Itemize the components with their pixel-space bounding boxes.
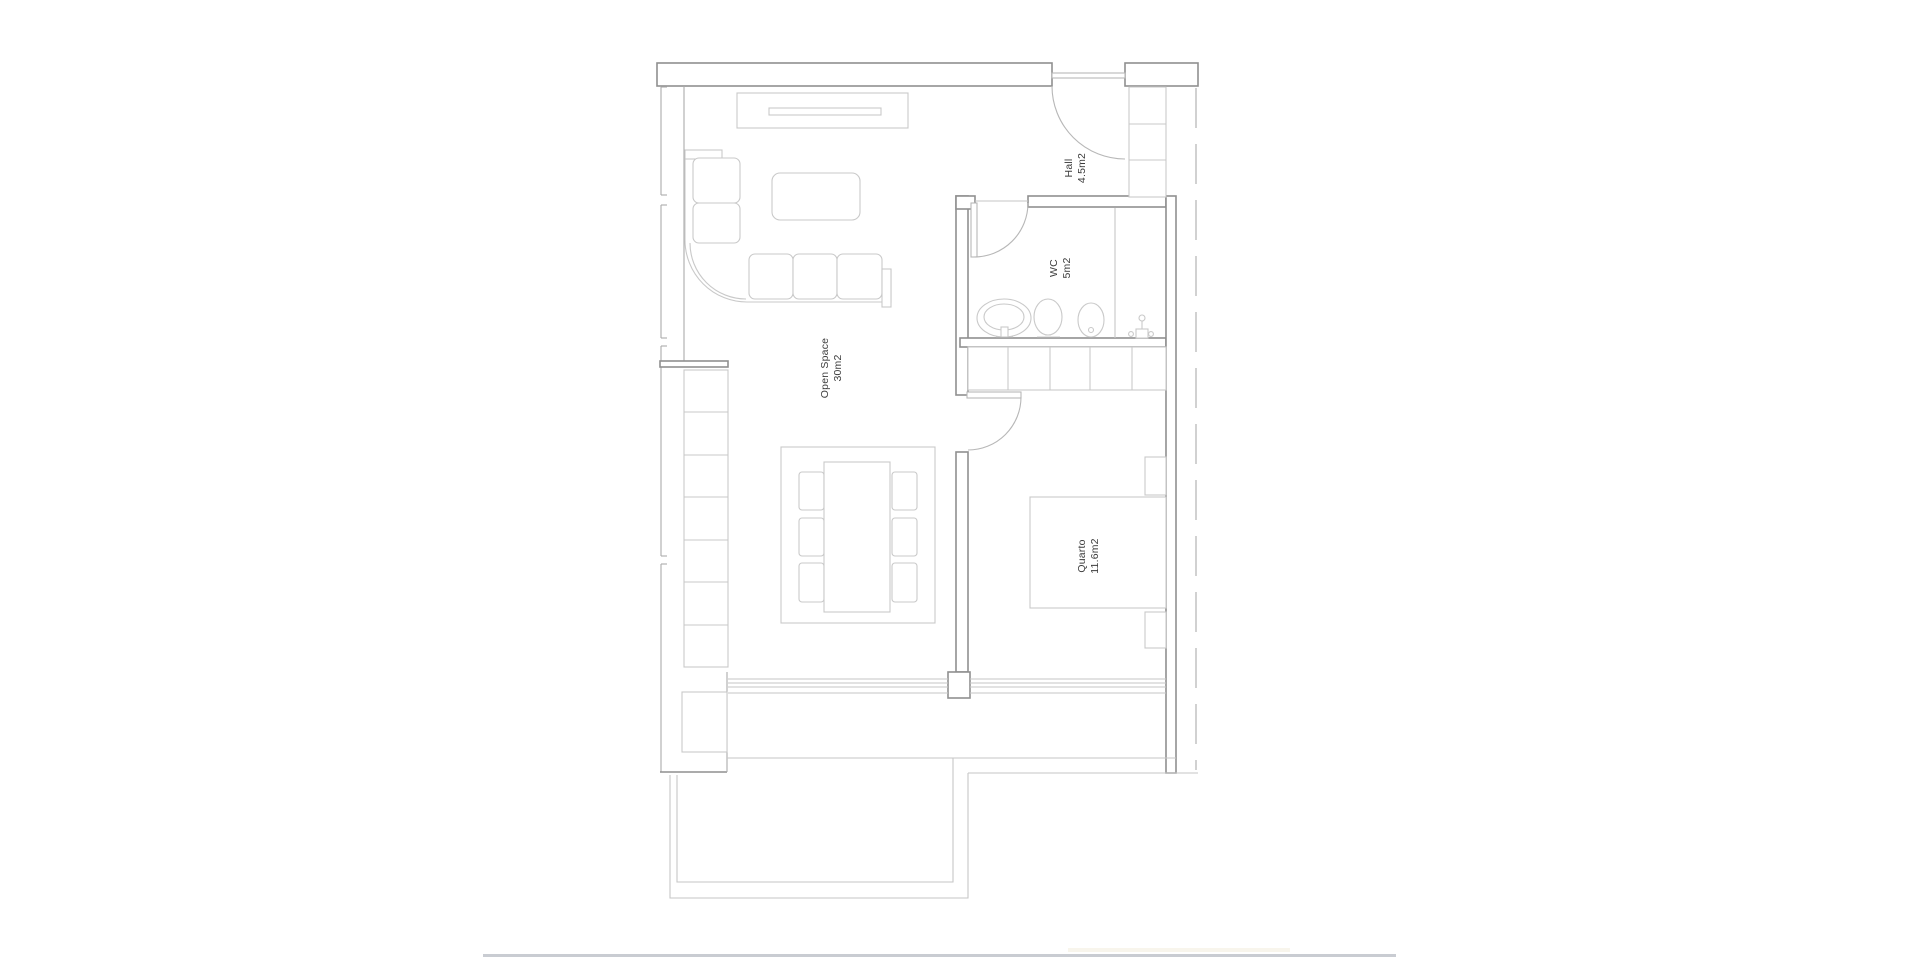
balcony-parapet-inner <box>677 758 953 882</box>
room-area: 30m2 <box>832 354 845 381</box>
dining-set <box>781 447 935 623</box>
tv <box>769 108 881 115</box>
wc-bottom-wall <box>960 338 1166 347</box>
room-label-hall: Hall 4.5m2 <box>1063 153 1089 183</box>
balcony-parapet-outer <box>670 773 968 898</box>
nightstand-bottom <box>1145 612 1166 648</box>
page-edge-faint-line <box>1068 948 1290 952</box>
terrace-planter <box>682 692 727 752</box>
wc-fixtures <box>977 299 1153 338</box>
entrance-door <box>1052 73 1125 159</box>
sliding-door-pier <box>948 672 970 698</box>
floor-plan-page: Open Space 30m2 Hall 4.5m2 WC 5m2 Quarto… <box>0 0 1920 959</box>
room-area: 5m2 <box>1061 257 1074 278</box>
sink <box>977 299 1031 337</box>
dining-table <box>824 462 890 612</box>
hall-bottom-wall <box>1028 196 1166 207</box>
divider-wall-lower <box>956 452 968 672</box>
corridor-closet <box>968 347 1166 390</box>
page-edge-line <box>483 954 1396 957</box>
room-name: Quarto <box>1076 539 1089 572</box>
room-label-wc: WC 5m2 <box>1048 257 1074 278</box>
bidet <box>1078 303 1104 337</box>
nightstand-top <box>1145 457 1166 495</box>
shower-tap <box>1129 315 1154 338</box>
divider-wall-upper <box>956 196 968 395</box>
terrace <box>670 692 1198 898</box>
wc-door <box>971 203 1028 257</box>
room-name: Hall <box>1063 159 1076 178</box>
bedroom-door <box>967 392 1021 450</box>
floor-plan-drawing <box>0 0 1920 959</box>
sliding-glass-doors <box>728 679 1166 693</box>
hall-closet <box>1129 87 1166 197</box>
room-name: Open Space <box>819 338 832 398</box>
left-window-markers <box>661 87 667 772</box>
room-label-quarto: Quarto 11.6m2 <box>1076 538 1102 573</box>
living-room-furniture <box>685 93 908 307</box>
tv-cabinet <box>737 93 908 128</box>
toilet <box>1034 299 1062 337</box>
room-area: 4.5m2 <box>1076 153 1089 183</box>
kitchen-counter <box>684 370 728 667</box>
room-name: WC <box>1048 259 1061 277</box>
doors <box>967 73 1125 450</box>
right-wall <box>1166 196 1176 773</box>
kitchen-wall-stub <box>660 361 728 367</box>
room-area: 11.6m2 <box>1089 538 1102 573</box>
top-wall-left <box>657 63 1052 86</box>
coffee-table <box>772 173 860 220</box>
top-wall-right <box>1125 63 1198 86</box>
room-label-open-space: Open Space 30m2 <box>819 338 845 398</box>
